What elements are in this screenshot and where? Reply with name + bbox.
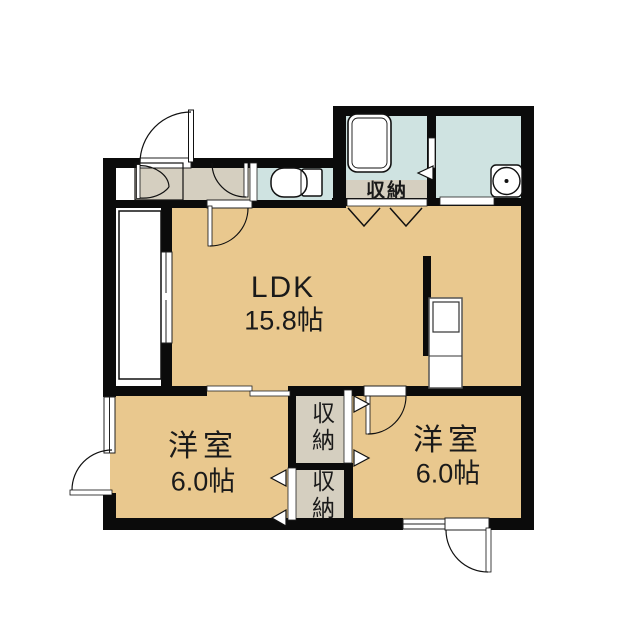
balcony xyxy=(119,211,161,379)
bathroom-sliding-door xyxy=(429,138,436,168)
ldk-label: LDK xyxy=(251,273,315,303)
hall-storage-label: 収納 xyxy=(366,182,408,201)
bedroom-left-label: 洋室 xyxy=(168,432,238,462)
washroom-sliding-door xyxy=(440,197,494,205)
toilet-door-panel xyxy=(250,163,257,201)
bedroom-right-exterior-door-opening xyxy=(445,518,489,530)
bedroom-left-area-label: 6.0帖 xyxy=(171,469,236,496)
bedroom-right-door-opening xyxy=(364,386,406,396)
ldk-area-label: 15.8帖 xyxy=(244,308,324,335)
bedroom-right-label: 洋室 xyxy=(413,426,483,456)
lower-closet-door-panel xyxy=(288,468,296,520)
kitchen-counter-sink-icon xyxy=(429,298,462,388)
bedroom-right-area-label: 6.0帖 xyxy=(416,461,481,488)
bathtub-icon xyxy=(348,114,391,172)
ldk-door-opening xyxy=(207,200,252,208)
ldk-floor xyxy=(166,200,526,391)
lower-closet-label: 収納 xyxy=(310,469,333,523)
window-balcony xyxy=(160,252,172,343)
upper-closet-door-panel xyxy=(344,390,352,463)
upper-closet-label: 収納 xyxy=(310,401,333,455)
toilet-icon xyxy=(271,168,322,197)
bedroom-right-floor xyxy=(348,390,526,524)
floor-plan: LDK 15.8帖 洋室 6.0帖 洋室 6.0帖 収納 収納 収納 xyxy=(0,0,640,640)
window-bottom-wall xyxy=(403,519,445,529)
washing-machine-pan-icon xyxy=(491,165,522,197)
window-left-wall xyxy=(104,397,115,453)
ldk-bedroom-sliding-panel-1 xyxy=(207,386,252,391)
ldk-bedroom-sliding-panel-2 xyxy=(250,391,290,396)
